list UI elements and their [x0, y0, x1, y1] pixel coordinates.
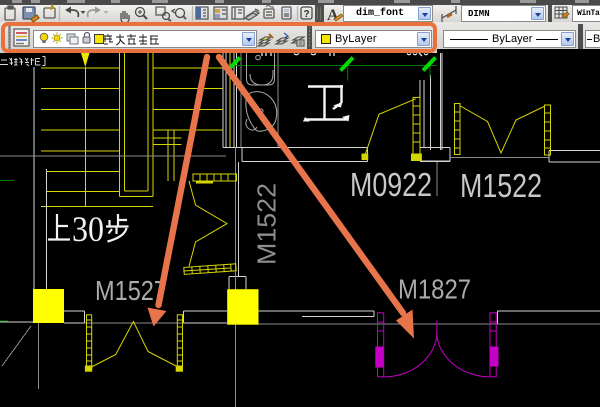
svg-text:M1827: M1827: [398, 274, 471, 305]
svg-text:M0922: M0922: [350, 166, 432, 203]
svg-text:M1522: M1522: [460, 167, 542, 204]
svg-text:30: 30: [72, 209, 104, 249]
svg-text:M1522: M1522: [252, 183, 282, 265]
svg-text:?: ?: [304, 9, 310, 20]
